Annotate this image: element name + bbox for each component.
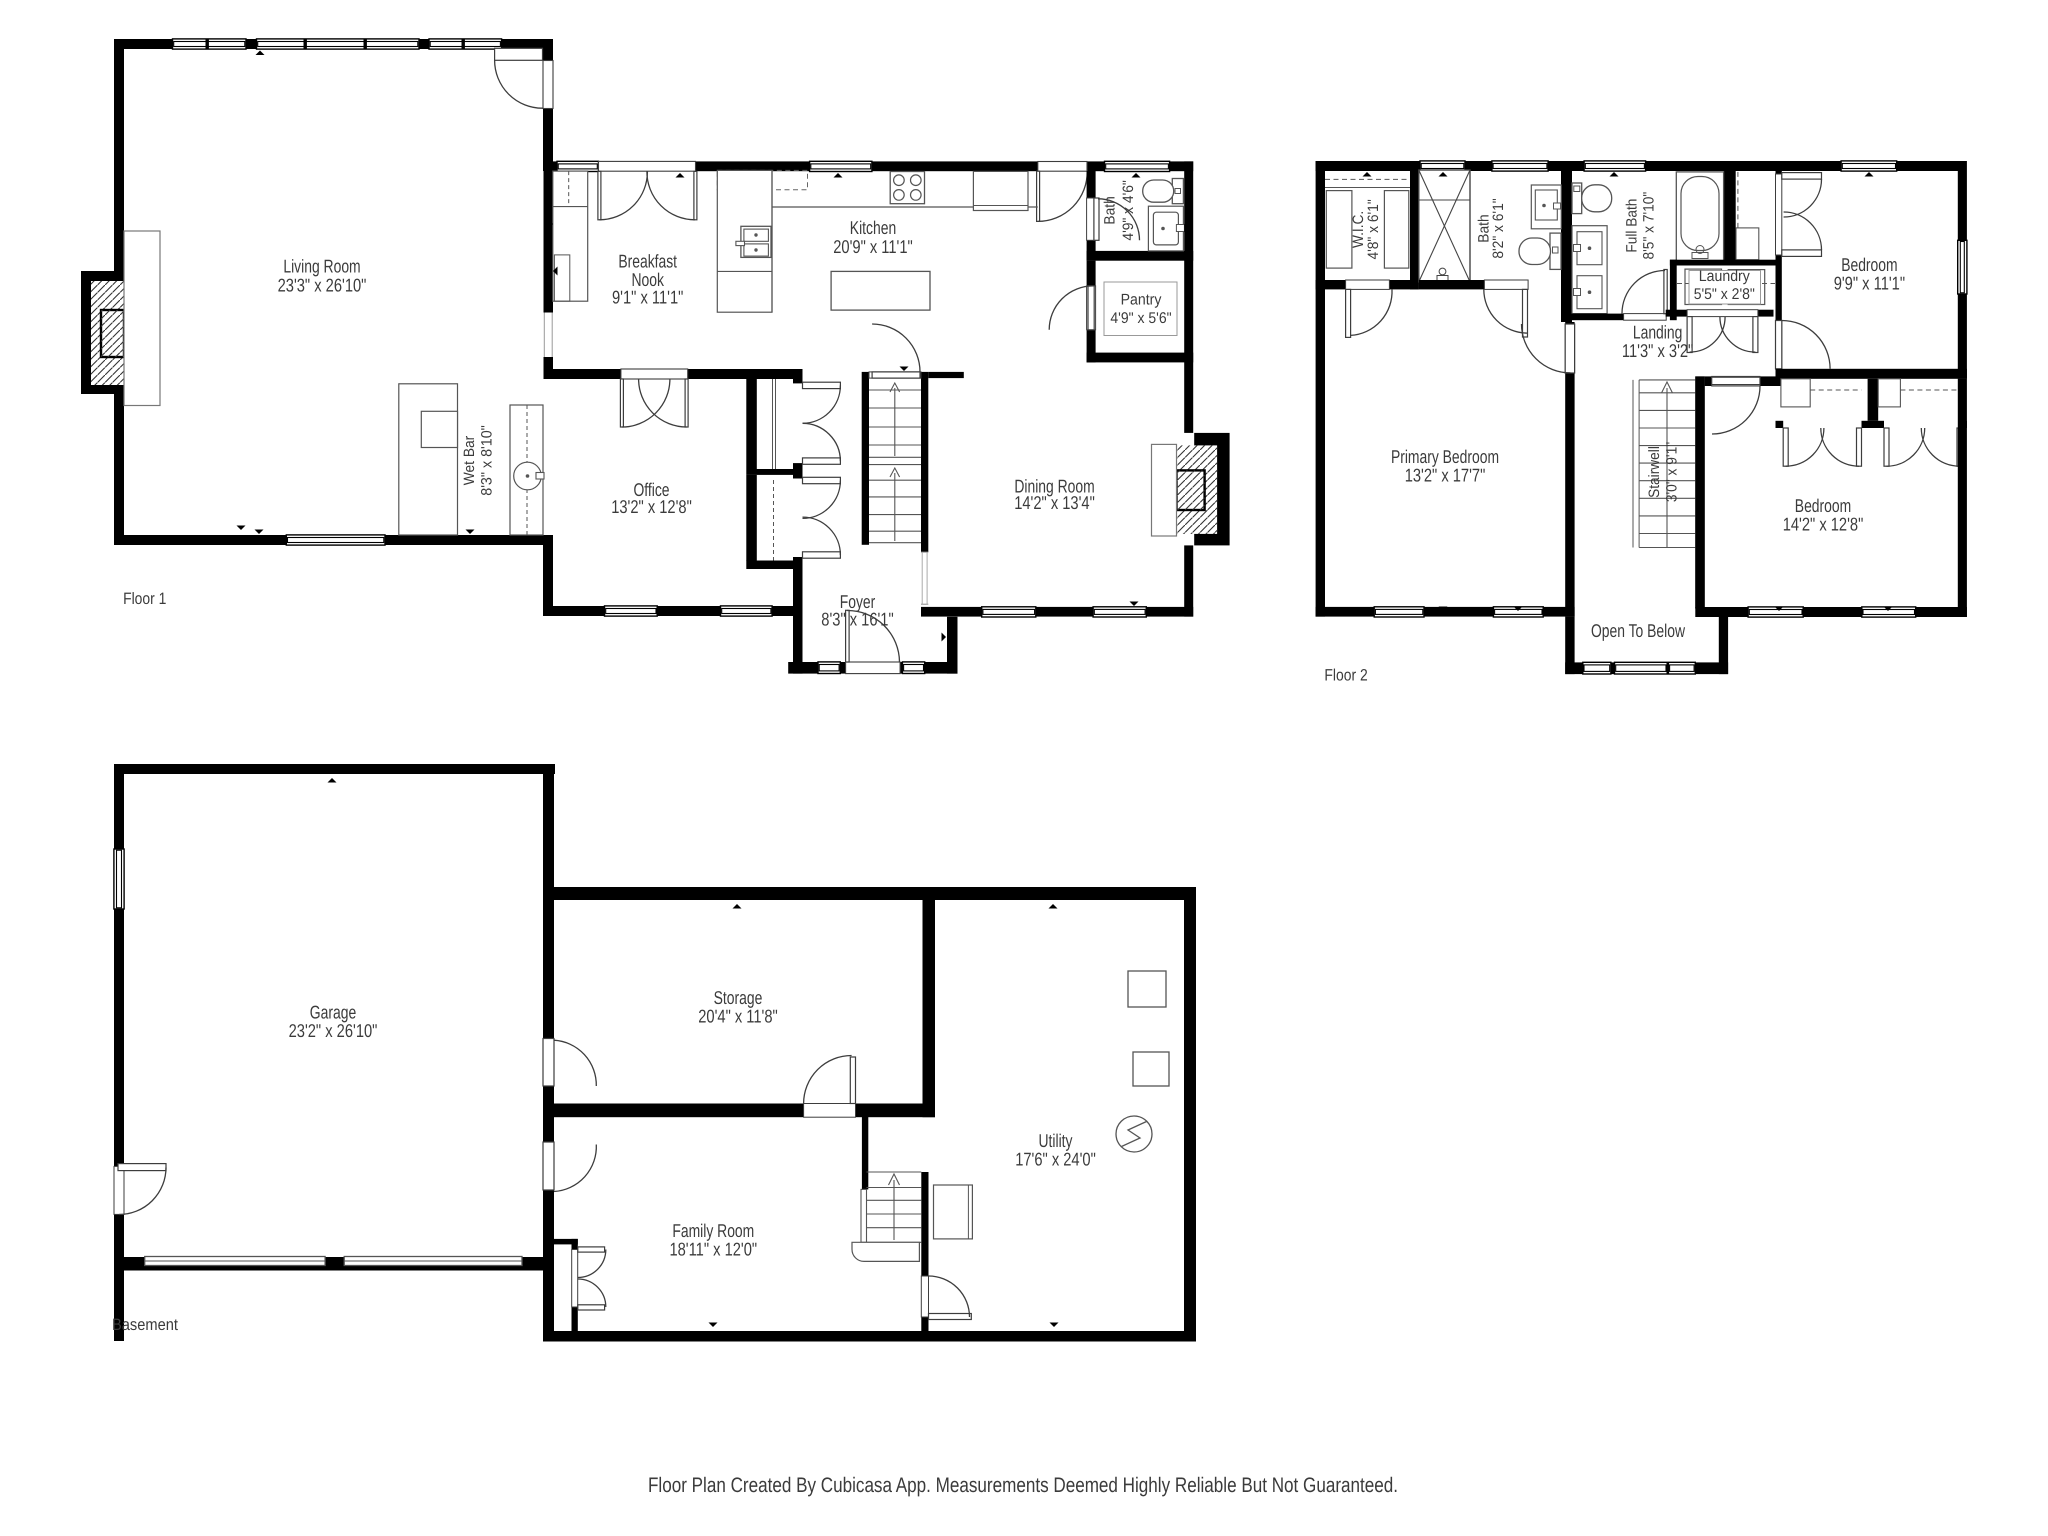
svg-text:8'2" x 6'1": 8'2" x 6'1" xyxy=(1490,198,1507,258)
svg-text:23'3" x 26'10": 23'3" x 26'10" xyxy=(278,275,367,296)
svg-text:8'3" x 8'10": 8'3" x 8'10" xyxy=(479,425,496,496)
svg-text:13'2" x 12'8": 13'2" x 12'8" xyxy=(611,496,692,517)
svg-text:14'2" x 12'8": 14'2" x 12'8" xyxy=(1783,514,1864,535)
svg-text:11'3" x 3'2": 11'3" x 3'2" xyxy=(1622,340,1693,361)
svg-text:Floor 2: Floor 2 xyxy=(1324,667,1367,685)
svg-text:13'2" x 17'7": 13'2" x 17'7" xyxy=(1405,465,1486,486)
svg-text:Floor Plan Created By Cubicasa: Floor Plan Created By Cubicasa App. Meas… xyxy=(648,1474,1398,1497)
svg-text:Pantry: Pantry xyxy=(1121,292,1162,309)
svg-text:5'5" x 2'8": 5'5" x 2'8" xyxy=(1694,286,1755,303)
svg-text:Floor 1: Floor 1 xyxy=(123,590,166,608)
svg-text:14'2" x 13'4": 14'2" x 13'4" xyxy=(1014,492,1095,513)
svg-text:3'0" x 9'1": 3'0" x 9'1" xyxy=(1664,442,1681,502)
svg-text:4'9" x 5'6": 4'9" x 5'6" xyxy=(1110,310,1171,327)
svg-text:8'3" x 16'1": 8'3" x 16'1" xyxy=(821,609,893,630)
svg-text:20'4" x 11'8": 20'4" x 11'8" xyxy=(698,1005,778,1026)
svg-text:Full Bath: Full Bath xyxy=(1624,199,1641,253)
svg-text:4'9" x 4'6": 4'9" x 4'6" xyxy=(1120,180,1137,240)
svg-text:Stairwell: Stairwell xyxy=(1646,446,1663,498)
svg-text:Wet Bar: Wet Bar xyxy=(461,436,478,486)
svg-text:8'5" x 7'10": 8'5" x 7'10" xyxy=(1641,192,1658,260)
svg-text:9'9" x 11'1": 9'9" x 11'1" xyxy=(1834,272,1905,293)
svg-text:4'8" x 6'1": 4'8" x 6'1" xyxy=(1365,199,1382,259)
svg-text:Bath: Bath xyxy=(1102,196,1119,224)
svg-text:Basement: Basement xyxy=(112,1316,178,1334)
svg-text:Open To Below: Open To Below xyxy=(1591,620,1685,641)
svg-text:9'1" x 11'1": 9'1" x 11'1" xyxy=(612,287,683,308)
svg-text:Living Room: Living Room xyxy=(283,256,360,277)
svg-text:23'2" x 26'10": 23'2" x 26'10" xyxy=(289,1020,378,1041)
svg-text:Laundry: Laundry xyxy=(1699,268,1750,285)
svg-text:17'6" x 24'0": 17'6" x 24'0" xyxy=(1015,1149,1096,1170)
svg-text:18'11" x 12'0": 18'11" x 12'0" xyxy=(669,1239,757,1260)
svg-text:20'9" x 11'1": 20'9" x 11'1" xyxy=(833,236,913,257)
